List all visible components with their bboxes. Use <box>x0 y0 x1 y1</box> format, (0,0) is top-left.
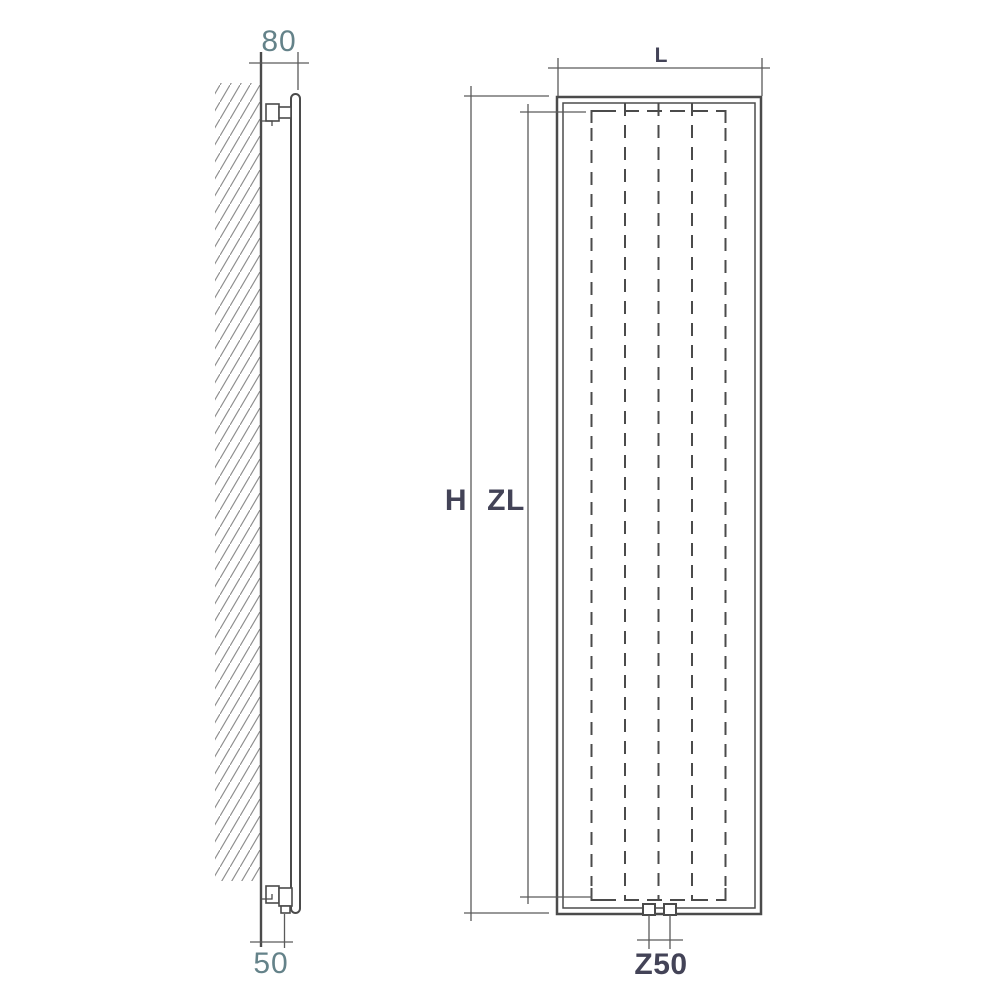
pipe-offset-dimension: 50 <box>250 914 293 980</box>
radiator-technical-drawing: 80 50 <box>0 0 1000 1000</box>
element-bottom-right-hook <box>716 888 726 900</box>
connection-spacing-dimension-label: Z50 <box>634 948 687 981</box>
connection-stub-right <box>664 904 676 915</box>
bracket-arm <box>279 107 291 118</box>
element-top-left-hook <box>592 111 602 123</box>
element-height-dimension: ZL <box>487 104 592 904</box>
pipe-offset-dimension-label: 50 <box>253 947 288 980</box>
width-dimension-label: L <box>655 44 668 67</box>
depth-dimension-label: 80 <box>261 25 296 58</box>
wall-hatch <box>215 83 261 881</box>
side-view: 80 50 <box>215 25 309 980</box>
drawing-svg: 80 50 <box>0 0 1000 1000</box>
connection-spacing-dimension: Z50 <box>634 915 687 981</box>
radiator-panel-side <box>291 94 300 913</box>
connection-stub-left <box>643 904 655 915</box>
element-top-right-hook <box>716 111 726 123</box>
element-bottom-left-hook <box>592 888 602 900</box>
top-mounting-bracket <box>261 104 291 126</box>
bracket-anchor <box>266 104 279 121</box>
width-dimension: L <box>548 44 770 96</box>
front-view: L H ZL Z50 <box>445 44 770 981</box>
height-dimension-label: H <box>445 484 467 517</box>
bottom-mounting-bracket <box>261 886 292 913</box>
heating-element-lines <box>592 103 726 901</box>
depth-dimension: 80 <box>249 25 309 90</box>
pipe-stub <box>281 906 290 913</box>
element-height-dimension-label: ZL <box>487 484 525 517</box>
valve-body <box>279 888 292 906</box>
